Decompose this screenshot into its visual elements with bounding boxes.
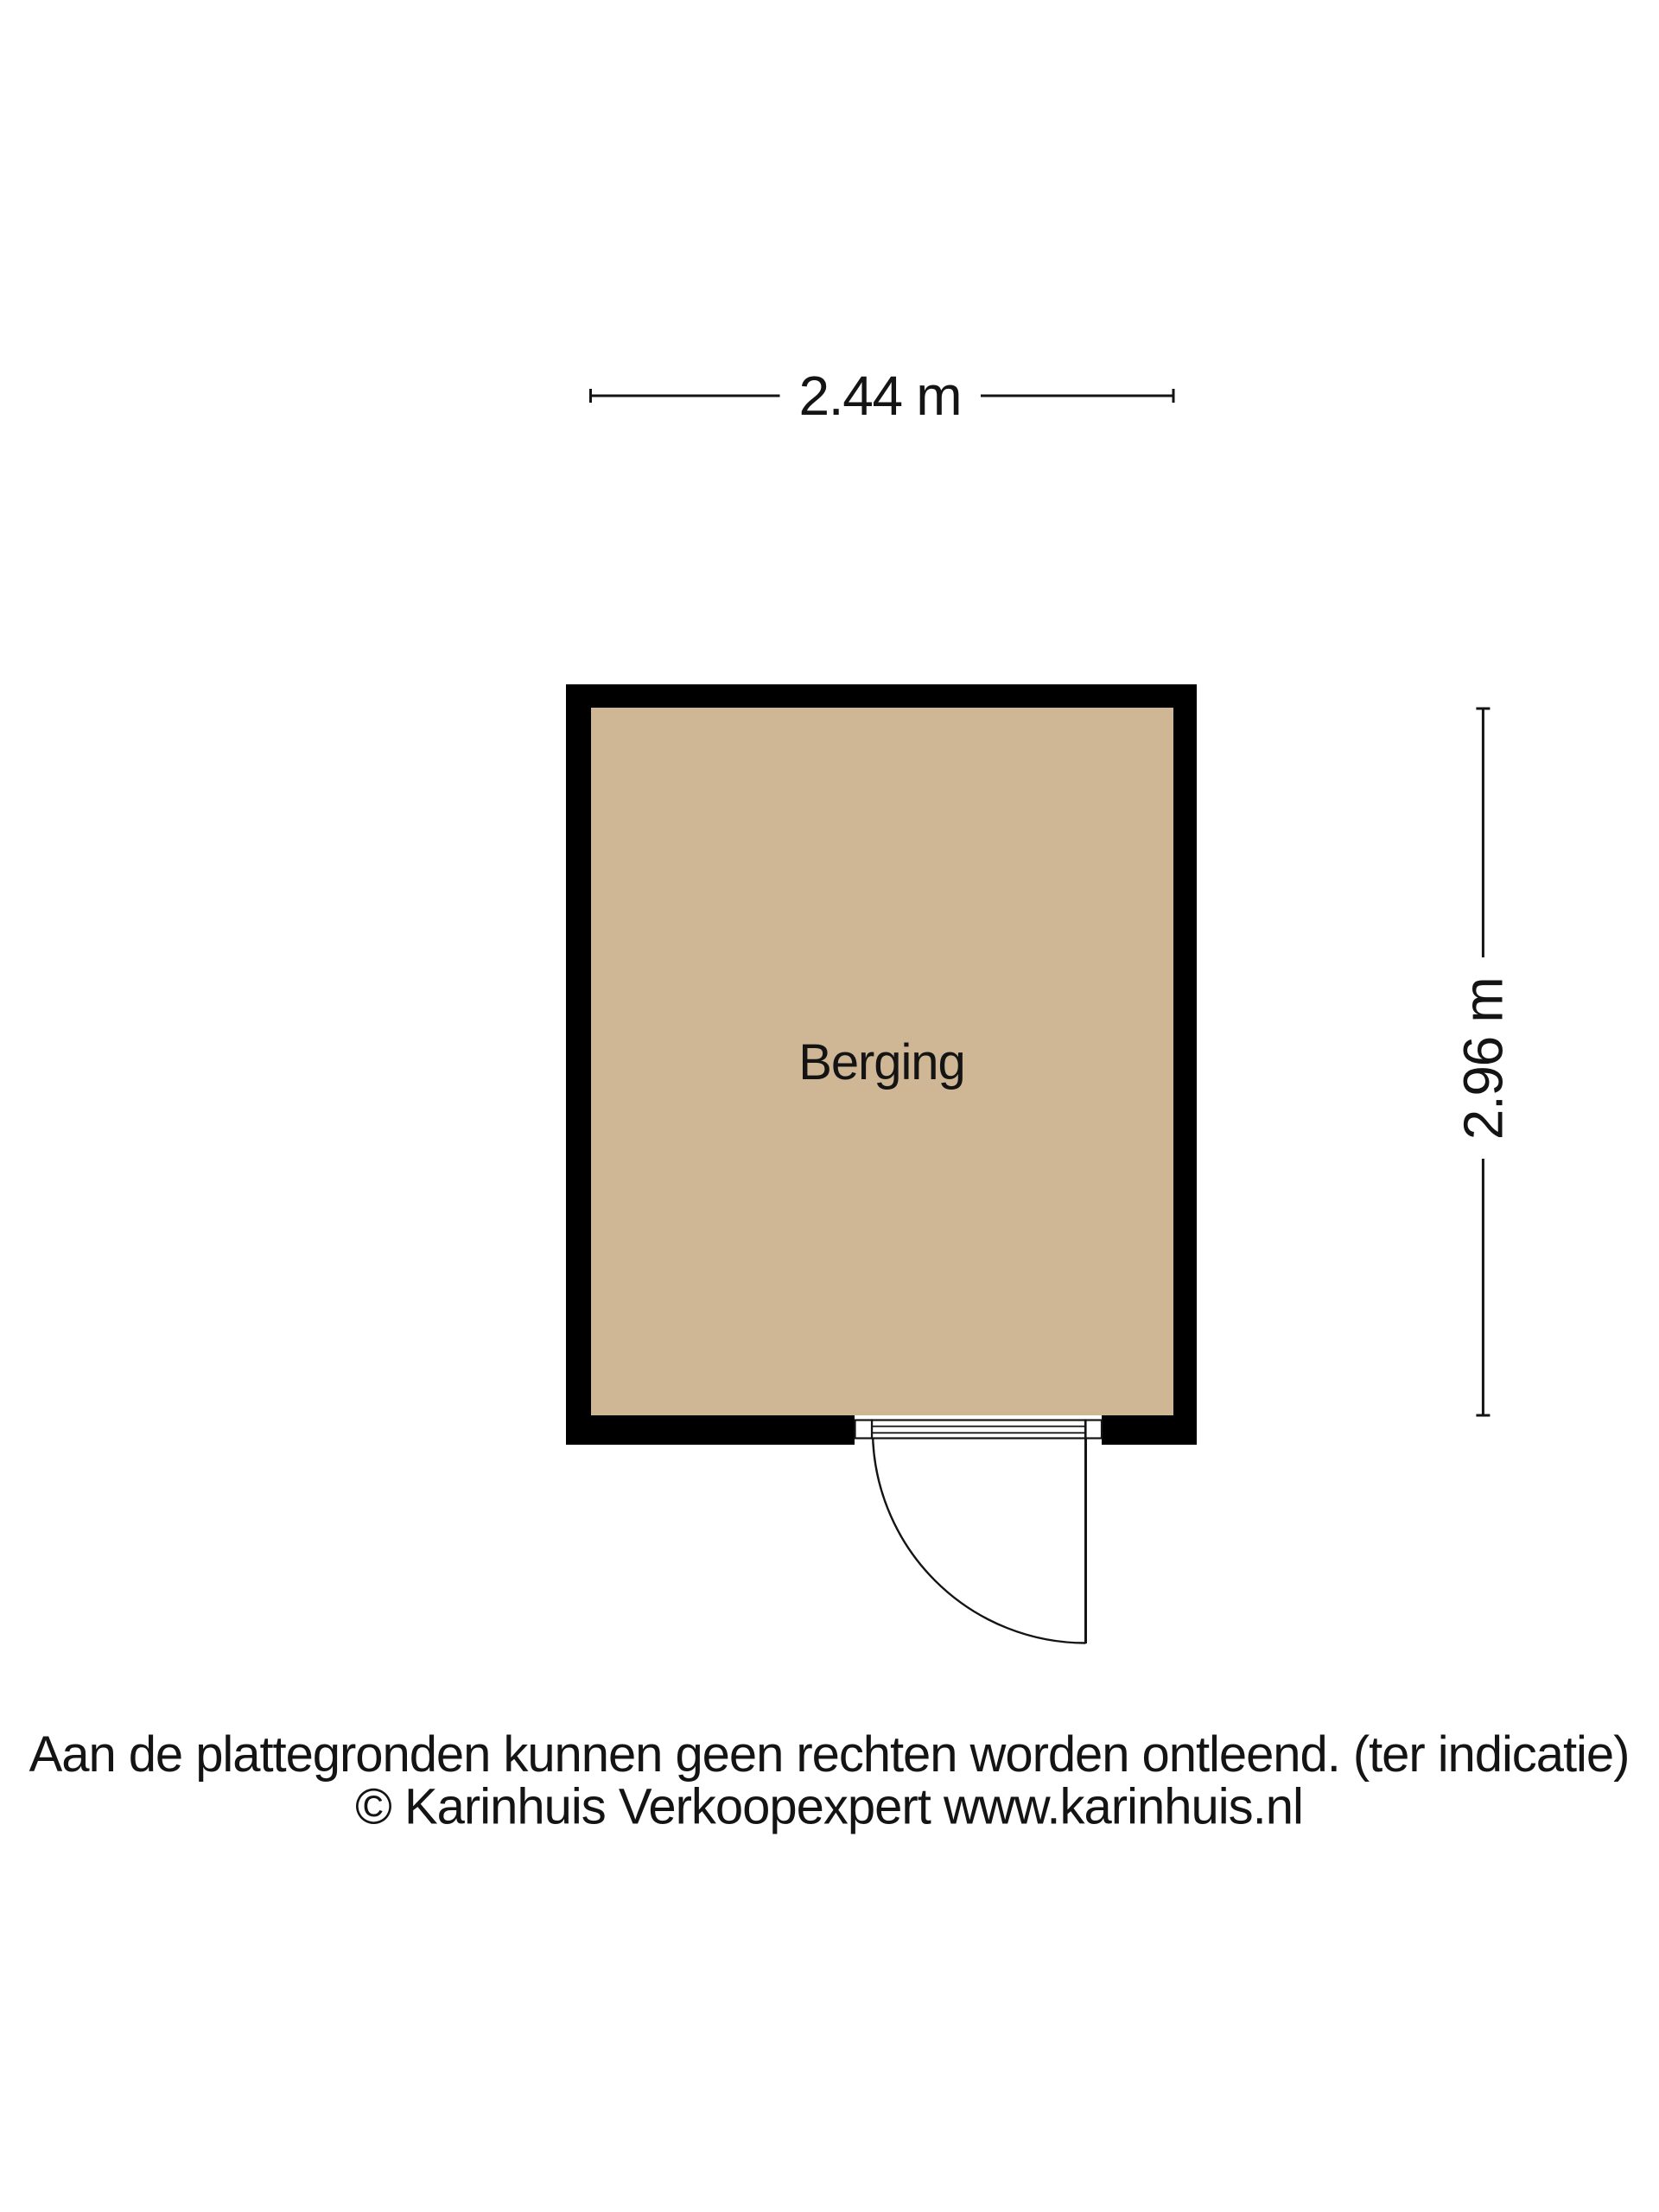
svg-text:© Karinhuis Verkoopexpert www.: © Karinhuis Verkoopexpert www.karinhuis.… xyxy=(355,1779,1304,1835)
svg-text:Aan de plattegronden kunnen ge: Aan de plattegronden kunnen geen rechten… xyxy=(29,1726,1630,1783)
svg-text:2.96 m: 2.96 m xyxy=(1452,976,1514,1140)
svg-text:Berging: Berging xyxy=(798,1034,966,1090)
svg-text:2.44 m: 2.44 m xyxy=(799,365,963,427)
